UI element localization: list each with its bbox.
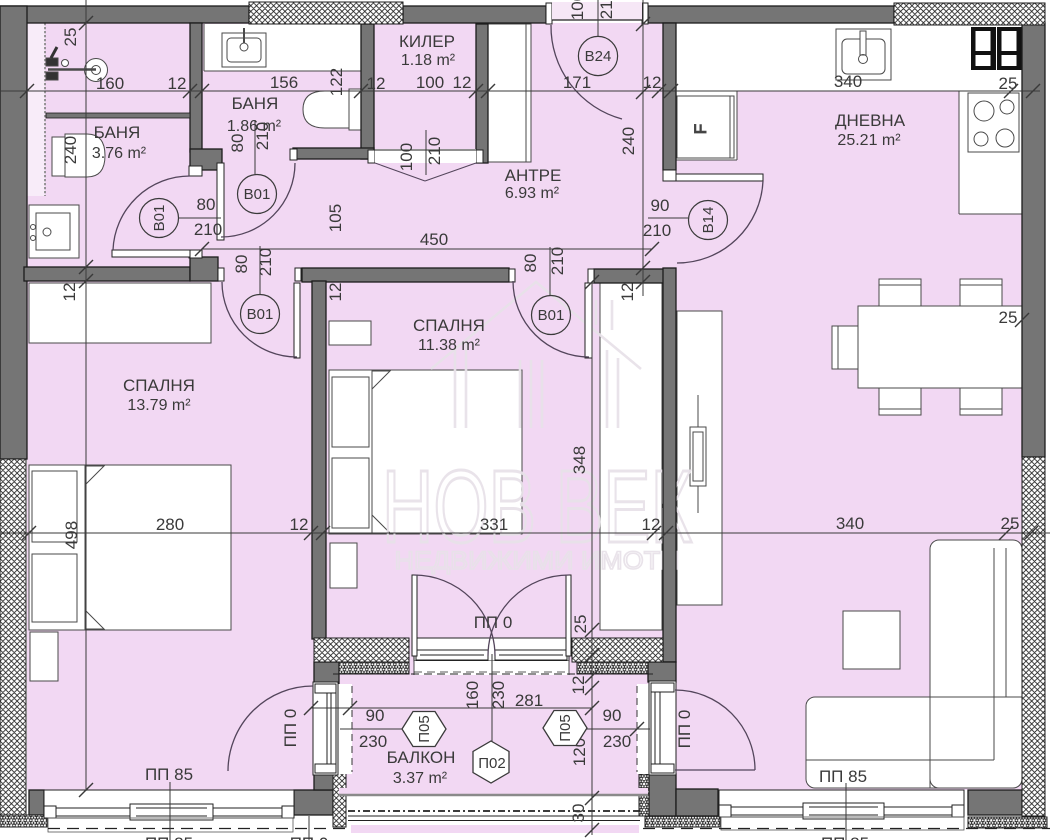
svg-text:ПП 0: ПП 0 <box>474 613 513 632</box>
svg-text:90: 90 <box>366 706 385 725</box>
svg-text:30: 30 <box>569 804 588 823</box>
svg-text:450: 450 <box>420 230 448 249</box>
svg-text:F: F <box>691 124 710 134</box>
svg-text:ПП 0: ПП 0 <box>290 834 329 840</box>
svg-text:210: 210 <box>253 122 272 150</box>
svg-text:348: 348 <box>570 446 589 474</box>
svg-text:210: 210 <box>597 0 616 19</box>
svg-text:100: 100 <box>416 73 444 92</box>
svg-text:СПАЛНЯ: СПАЛНЯ <box>123 376 195 395</box>
svg-text:1.18 m²: 1.18 m² <box>401 52 456 69</box>
svg-text:КИЛЕР: КИЛЕР <box>399 32 455 51</box>
svg-text:СПАЛНЯ: СПАЛНЯ <box>413 316 485 335</box>
svg-text:210: 210 <box>256 248 275 276</box>
svg-text:ПП 85: ПП 85 <box>819 767 867 786</box>
svg-text:156: 156 <box>270 73 298 92</box>
svg-text:НЕДВИЖИМИ ИМОТИ: НЕДВИЖИМИ ИМОТИ <box>395 547 680 575</box>
svg-text:B01: B01 <box>151 205 168 232</box>
svg-text:12: 12 <box>367 74 386 93</box>
svg-text:B01: B01 <box>244 186 271 203</box>
svg-text:122: 122 <box>327 68 346 96</box>
svg-text:90: 90 <box>651 196 670 215</box>
svg-text:80: 80 <box>232 255 251 274</box>
svg-text:25: 25 <box>571 615 590 634</box>
svg-text:12: 12 <box>642 515 661 534</box>
svg-text:240: 240 <box>619 127 638 155</box>
svg-text:230: 230 <box>489 681 508 709</box>
svg-text:11.38 m²: 11.38 m² <box>418 337 481 354</box>
svg-text:210: 210 <box>194 220 222 239</box>
svg-text:12: 12 <box>326 283 345 302</box>
svg-text:498: 498 <box>62 521 81 549</box>
svg-text:12: 12 <box>643 73 662 92</box>
svg-text:12: 12 <box>569 676 588 695</box>
svg-text:331: 331 <box>480 515 508 534</box>
svg-text:90: 90 <box>603 706 622 725</box>
svg-text:П05: П05 <box>416 715 433 742</box>
svg-text:ПП 0: ПП 0 <box>281 709 300 748</box>
svg-text:АНТРЕ: АНТРЕ <box>505 166 562 185</box>
svg-text:ПП 0: ПП 0 <box>675 710 694 749</box>
svg-text:210: 210 <box>548 247 567 275</box>
svg-text:12: 12 <box>168 74 187 93</box>
svg-text:230: 230 <box>359 732 387 751</box>
svg-text:БАЛКОН: БАЛКОН <box>387 748 456 767</box>
svg-text:80: 80 <box>228 134 247 153</box>
svg-text:B01: B01 <box>538 307 565 324</box>
svg-text:210: 210 <box>425 137 444 165</box>
svg-text:340: 340 <box>834 72 862 91</box>
svg-text:171: 171 <box>563 73 591 92</box>
svg-text:П05: П05 <box>557 714 574 741</box>
svg-text:БАНЯ: БАНЯ <box>94 123 141 142</box>
svg-text:80: 80 <box>521 254 540 273</box>
svg-text:6.93 m²: 6.93 m² <box>505 185 560 202</box>
svg-text:80: 80 <box>197 195 216 214</box>
svg-text:П02: П02 <box>478 755 505 772</box>
svg-text:12: 12 <box>290 515 309 534</box>
svg-text:100: 100 <box>397 143 416 171</box>
svg-text:ПП 85: ПП 85 <box>145 834 193 840</box>
svg-text:БАНЯ: БАНЯ <box>232 94 279 113</box>
svg-text:230: 230 <box>603 732 631 751</box>
svg-text:105: 105 <box>326 204 345 232</box>
svg-text:100: 100 <box>568 0 587 20</box>
svg-text:B24: B24 <box>585 48 612 65</box>
svg-text:3.37 m²: 3.37 m² <box>393 770 448 787</box>
svg-text:210: 210 <box>643 221 671 240</box>
svg-text:B14: B14 <box>700 207 717 234</box>
svg-text:12: 12 <box>618 283 637 302</box>
svg-text:ПП 85: ПП 85 <box>821 834 869 840</box>
svg-text:280: 280 <box>156 515 184 534</box>
svg-text:340: 340 <box>836 514 864 533</box>
svg-text:160: 160 <box>463 681 482 709</box>
svg-text:25.21 m²: 25.21 m² <box>837 132 901 149</box>
svg-text:ДНЕВНА: ДНЕВНА <box>835 111 906 130</box>
svg-text:25: 25 <box>1001 514 1020 533</box>
svg-text:281: 281 <box>515 691 543 710</box>
svg-text:ПП 85: ПП 85 <box>145 765 193 784</box>
svg-text:12: 12 <box>60 283 79 302</box>
svg-text:25: 25 <box>61 28 80 47</box>
svg-text:B01: B01 <box>247 306 274 323</box>
svg-text:160: 160 <box>96 74 124 93</box>
svg-text:25: 25 <box>999 74 1018 93</box>
svg-text:240: 240 <box>61 136 80 164</box>
svg-text:25: 25 <box>999 308 1018 327</box>
svg-text:12: 12 <box>453 73 472 92</box>
svg-text:13.79 m²: 13.79 m² <box>127 397 191 414</box>
svg-text:3.76 m²: 3.76 m² <box>92 145 147 162</box>
